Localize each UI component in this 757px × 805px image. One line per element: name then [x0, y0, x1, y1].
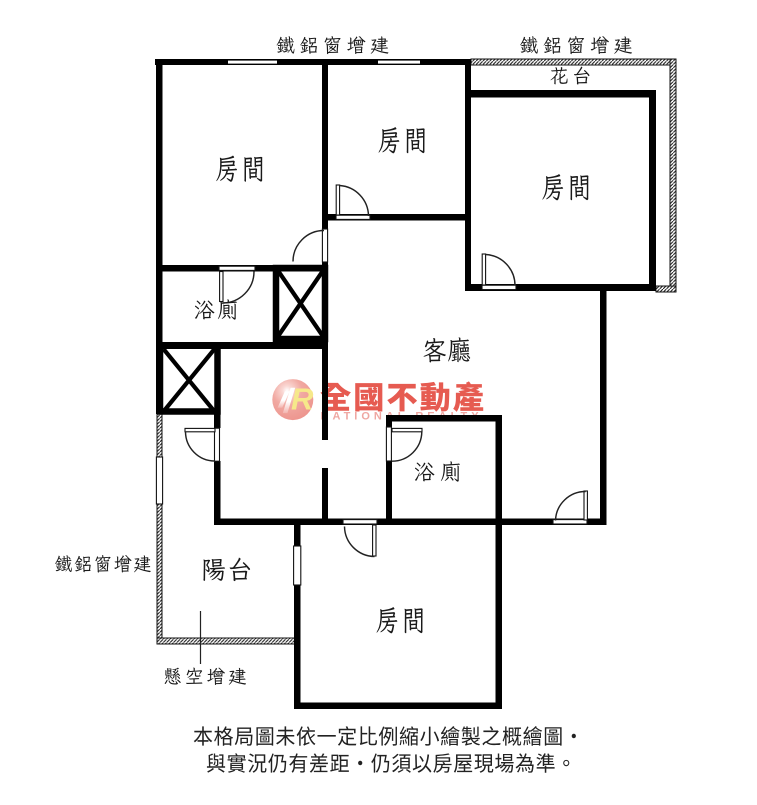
svg-text:NATIONAL REALTY: NATIONAL REALTY	[321, 411, 483, 423]
svg-text:R: R	[291, 382, 314, 417]
